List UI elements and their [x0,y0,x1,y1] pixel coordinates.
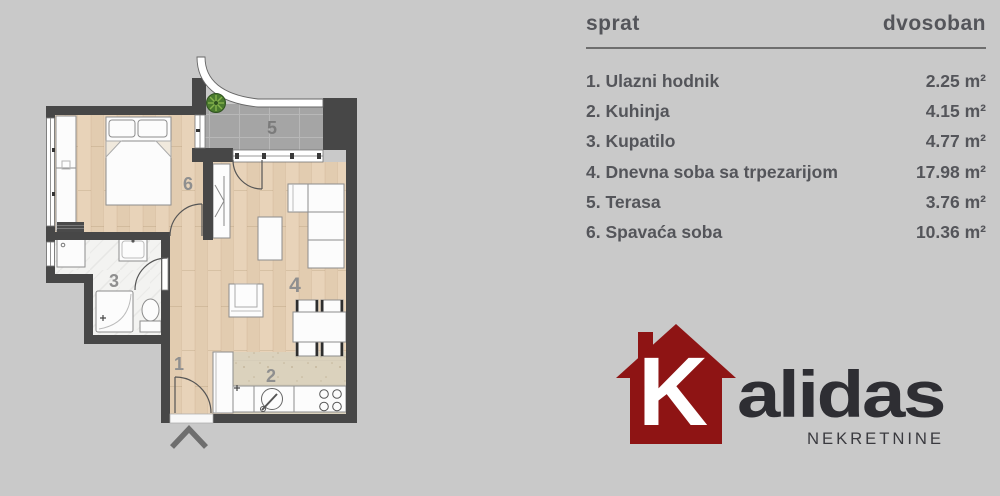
dining-table [293,312,346,342]
room-row: 1. Ulazni hodnik 2.25 m² [586,66,986,96]
entrance-arrow-icon [172,429,206,447]
terrace-top [197,57,323,113]
bedroom-window [47,118,56,226]
room-label-5: 5 [267,118,277,138]
room-row: 5. Terasa 3.76 m² [586,187,986,217]
room-row: 4. Dnevna soba sa trpezarijom 17.98 m² [586,157,986,187]
bed [106,117,171,205]
floor-plan: 1 2 3 4 5 6 [0,0,500,496]
panel-header: sprat dvosoban [586,12,986,36]
wardrobe [56,116,76,231]
room-area: 4.15 m² [926,101,986,122]
dining-chair [321,342,343,356]
room-label-2: 2 [266,366,276,386]
room-name: 4. Dnevna soba sa trpezarijom [586,162,838,183]
header-divider [586,47,986,49]
room-area: 17.98 m² [916,162,986,183]
shower [96,291,133,332]
room-list: 1. Ulazni hodnik 2.25 m² 2. Kuhinja 4.15… [586,66,986,248]
room-name: 1. Ulazni hodnik [586,71,719,92]
apartment-type: dvosoban [883,12,986,36]
room-row: 3. Kupatilo 4.77 m² [586,127,986,157]
hall-closet [213,164,230,238]
room-area: 4.77 m² [926,131,986,152]
room-name: 6. Spavaća soba [586,222,722,243]
logo-initial: K [638,337,708,446]
radiator [57,222,84,232]
room-row: 2. Kuhinja 4.15 m² [586,96,986,126]
agency-logo: K alidas NEKRETNINE [613,322,985,452]
kitchen-counter [233,385,346,412]
dining-chair [296,342,318,356]
room-name: 2. Kuhinja [586,101,670,122]
room-area: 2.25 m² [926,71,986,92]
bathroom-window [47,242,55,266]
info-panel: sprat dvosoban 1. Ulazni hodnik 2.25 m² … [586,12,986,248]
room-name: 5. Terasa [586,192,661,213]
logo-name: alidas [737,357,944,431]
armchair [229,284,263,317]
room-label-4: 4 [289,274,301,297]
room-row: 6. Spavaća soba 10.36 m² [586,217,986,247]
room-label-1: 1 [174,354,184,374]
plant [207,94,226,113]
room-label-3: 3 [109,271,119,291]
terrace-side-window [195,115,205,148]
floor-title: sprat [586,12,640,36]
terrace-floor [205,104,323,150]
room-label-6: 6 [183,174,193,194]
coffee-table [258,217,282,260]
room-area: 3.76 m² [926,192,986,213]
washing-machine [57,239,85,267]
toilet [140,299,161,332]
room-name: 3. Kupatilo [586,131,675,152]
room-area: 10.36 m² [916,222,986,243]
balcony-window-band [233,150,323,162]
logo-subtitle: NEKRETNINE [807,429,944,448]
